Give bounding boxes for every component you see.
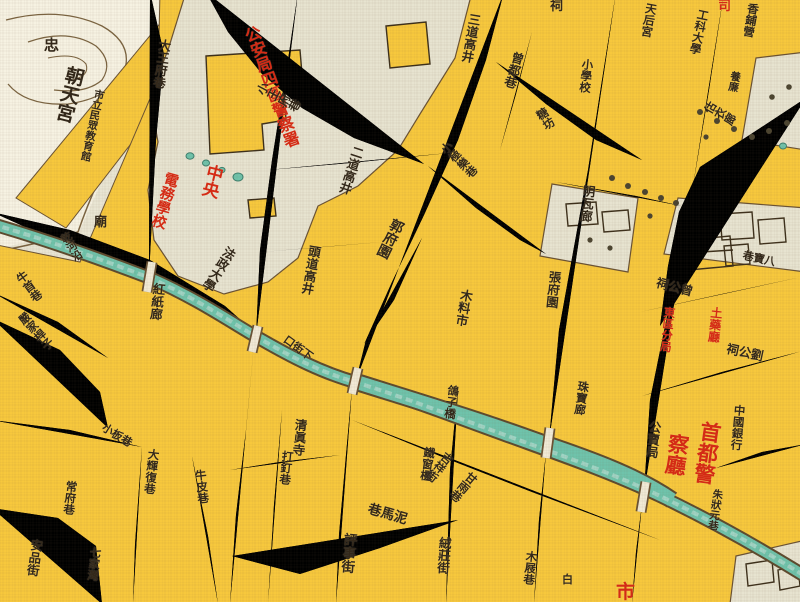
map-label-tangfang: 糖坊 (534, 106, 557, 132)
map-label-zengduxiang: 曾都巷 (502, 50, 525, 90)
map-label-xiajiekou: 口街下 (281, 334, 315, 363)
map-label-si-top-edge: 司 (718, 0, 731, 14)
map-label-chaotiangong: 朝天宮 (52, 64, 85, 124)
map-label-fazheng-daxue: 法政大學 (200, 244, 238, 293)
map-label-yanjiaganzi: 嚴家桿子 (16, 310, 56, 352)
map-label-shoudujing: 首都警 (691, 420, 722, 485)
map-label-liugongci: 祠公劉 (725, 342, 764, 363)
map-label-niushouxiang: 牛首巷 (14, 269, 44, 304)
map-label-zhong: 忠 (44, 38, 59, 54)
map-label-hongzhilang: 紅紙廊 (148, 282, 165, 321)
map-label-guyilang: 估衣廊 (702, 99, 738, 127)
map-label-rongzhuangjie: 絨莊街 (435, 536, 451, 574)
map-label-ganyuxiang: 甘雨巷 (448, 470, 480, 504)
map-label-zhubaolang: 珠寶廊 (573, 380, 590, 416)
map-label-qianheyan: 乾河沿 (58, 230, 83, 263)
map-label-babaoxiang: 巷寶八 (742, 250, 777, 268)
map-label-changfuxiang: 常府巷 (62, 480, 78, 516)
historical-city-map: 忠朝天宮市立民眾教育館大王府巷公安局四區警察署小王府巷中央電務學校法政大學紅紙廊… (0, 0, 800, 602)
map-label-erdaogaojing: 二道高井 (337, 144, 365, 196)
map-label-dianwu-xuexiao: 電務學校 (148, 170, 179, 230)
map-label-bai: 白 (562, 574, 573, 586)
map-label-zhangfuyuan: 張府園 (544, 270, 561, 309)
map-label-chating: 察廳 (662, 432, 690, 477)
map-label-zhongyang: 中央 (198, 162, 224, 199)
map-label-toudaogaojing: 頭道高井 (299, 244, 321, 296)
map-label-xiaojilexiang: 小極樂巷 (438, 139, 480, 180)
map-label-zhuzhuangyuanxiang: 朱狀元巷 (706, 488, 723, 531)
map-label-muliaoshi: 木料市 (453, 288, 473, 327)
map-label-tianhougong: 天后宮 (640, 2, 658, 38)
map-label-guofuyuan: 郭府園 (374, 216, 406, 260)
map-label-sandaogaojing: 三道高井 (459, 12, 481, 64)
map-label-pingshijie: 評事街 (338, 532, 356, 574)
map-labels: 忠朝天宮市立民眾教育館大王府巷公安局四區警察署小王府巷中央電務學校法政大學紅紙廊… (0, 0, 800, 602)
map-label-miao: 廟 (94, 216, 107, 230)
map-label-tuyaoting: 土藥廳 (706, 306, 722, 343)
map-label-minzhong-jiaoyuguan: 市立民眾教育館 (79, 88, 105, 162)
map-label-nimaxiang: 巷馬泥 (366, 502, 409, 527)
map-label-yanglian: 養廉 (726, 70, 741, 93)
map-label-mujixiang: 木屐巷 (522, 550, 538, 586)
map-label-ci-top-edge: 祠 (550, 0, 563, 14)
map-label-zhongguo-yinhang: 中國銀行 (730, 404, 746, 451)
map-label-xiaobanxiang: 小板巷 (100, 422, 134, 449)
map-label-xiaoxuexiao: 小學校 (578, 58, 594, 94)
map-label-geziqiao: 鴿子橋 (443, 384, 460, 420)
map-label-gongmaiju: 公賣局 (644, 420, 661, 459)
map-label-mingwalang: 明瓦廊 (578, 184, 595, 223)
map-label-dawangfuxiang: 大王府巷 (151, 38, 171, 89)
map-label-zenggongci: 祠公曾 (655, 276, 695, 298)
map-label-dadingxiang: 打釘巷 (278, 450, 294, 486)
map-label-anpinjie: 安品街 (25, 538, 43, 577)
map-label-qijiawan: 七家灣 (86, 546, 102, 582)
map-label-dongqufenju: 東區分局 (659, 306, 676, 353)
map-label-dahuifuxiang: 大輝復巷 (143, 448, 160, 495)
map-label-niupixiang: 牛皮巷 (194, 469, 210, 505)
map-label-shi-bottom-edge: 市 (616, 582, 635, 602)
map-label-xiangpuying: 香鋪營 (742, 2, 760, 38)
map-label-gongkedaxue: 工科大學 (688, 8, 709, 56)
